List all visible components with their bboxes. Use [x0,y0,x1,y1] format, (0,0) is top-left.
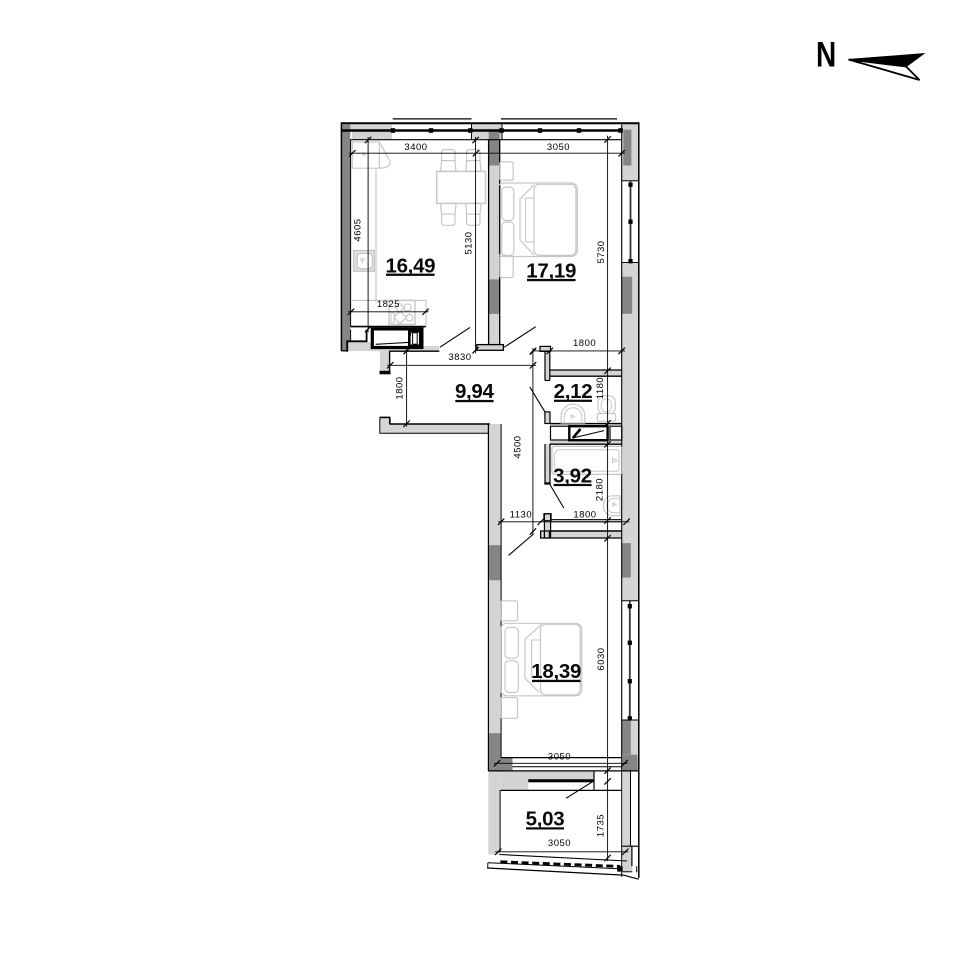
svg-text:3050: 3050 [547,142,570,153]
svg-text:18,39: 18,39 [531,660,581,683]
svg-text:3830: 3830 [448,352,471,363]
svg-text:1130: 1130 [510,510,532,521]
svg-text:1800: 1800 [573,338,596,349]
svg-text:5,03: 5,03 [526,808,565,831]
svg-text:17,19: 17,19 [526,259,576,282]
svg-text:2,12: 2,12 [554,380,593,403]
svg-text:5130: 5130 [464,231,475,254]
svg-text:N: N [816,34,836,74]
svg-text:3400: 3400 [404,142,427,153]
svg-text:1800: 1800 [394,376,405,399]
svg-text:4500: 4500 [513,435,524,458]
svg-text:9,94: 9,94 [455,380,495,403]
svg-text:6030: 6030 [596,647,607,670]
svg-text:1735: 1735 [596,814,607,837]
svg-text:3050: 3050 [548,752,571,763]
svg-text:3050: 3050 [548,838,571,849]
svg-text:2180: 2180 [595,478,606,501]
svg-text:1825: 1825 [377,299,400,310]
svg-text:1180: 1180 [595,377,606,399]
svg-text:5730: 5730 [596,240,607,263]
svg-text:4605: 4605 [353,218,364,241]
svg-text:1800: 1800 [573,510,596,521]
